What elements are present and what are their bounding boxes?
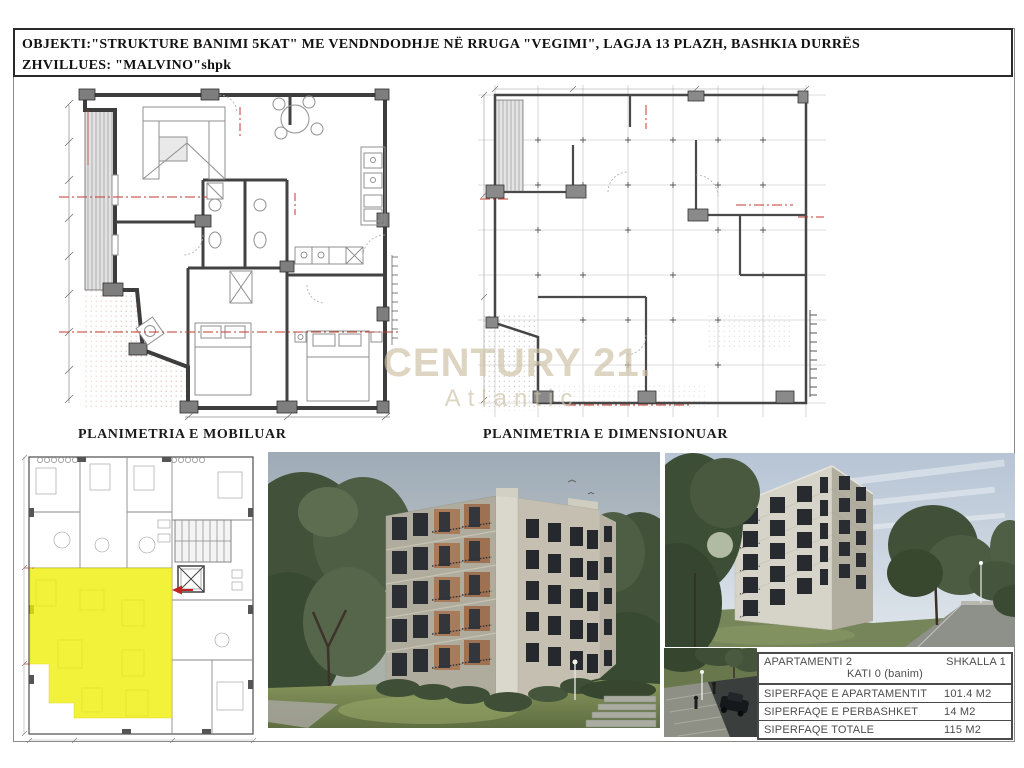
floor-label: KATI 0 (banim) — [764, 668, 1006, 680]
stair-label: SHKALLA 1 — [946, 656, 1006, 668]
balcony-hatched — [495, 100, 523, 192]
apartment-info-table: APARTAMENTI 2 SHKALLA 1 KATI 0 (banim) S… — [757, 652, 1013, 740]
row-label: SIPERFAQE E PERBASHKET — [764, 706, 944, 718]
title-block: OBJEKTI:"STRUKTURE BANIMI 5KAT" ME VENDN… — [13, 28, 1013, 77]
building-render-side — [665, 453, 1015, 647]
row-label: SIPERFAQE E APARTAMENTIT — [764, 688, 944, 700]
apartment-highlight — [30, 568, 172, 718]
balcony-hatched — [85, 110, 115, 290]
building-render-parking — [664, 648, 757, 737]
apartment-label: APARTAMENTI 2 — [764, 656, 852, 668]
row-value: 14 M2 — [944, 706, 1006, 718]
furnished-floor-plan — [55, 85, 405, 423]
building — [378, 488, 618, 710]
table-row: SIPERFAQE TOTALE 115 M2 — [759, 721, 1011, 738]
developer-line: ZHVILLUES: "MALVINO"shpk — [22, 55, 1011, 76]
key-plan — [22, 450, 267, 746]
building-render-main — [268, 452, 660, 728]
dimensioned-floor-plan — [478, 85, 826, 417]
apartment-outline — [495, 95, 806, 403]
railing-comb — [810, 310, 817, 397]
stipple-right — [708, 313, 790, 351]
stipple-strip — [85, 290, 115, 408]
project-title: OBJEKTI:"STRUKTURE BANIMI 5KAT" ME VENDN… — [22, 34, 1011, 55]
row-label: SIPERFAQE TOTALE — [764, 724, 944, 736]
dimensioned-plan-label: PLANIMETRIA E DIMENSIONUAR — [483, 427, 728, 443]
row-value: 115 M2 — [944, 724, 1006, 736]
table-row: SIPERFAQE E APARTAMENTIT 101.4 M2 — [759, 685, 1011, 703]
row-value: 101.4 M2 — [944, 688, 1006, 700]
stair-core — [175, 520, 231, 562]
furnished-plan-label: PLANIMETRIA E MOBILUAR — [78, 427, 286, 443]
info-table-header: APARTAMENTI 2 SHKALLA 1 KATI 0 (banim) — [759, 654, 1011, 685]
table-row: SIPERFAQE E PERBASHKET 14 M2 — [759, 703, 1011, 721]
